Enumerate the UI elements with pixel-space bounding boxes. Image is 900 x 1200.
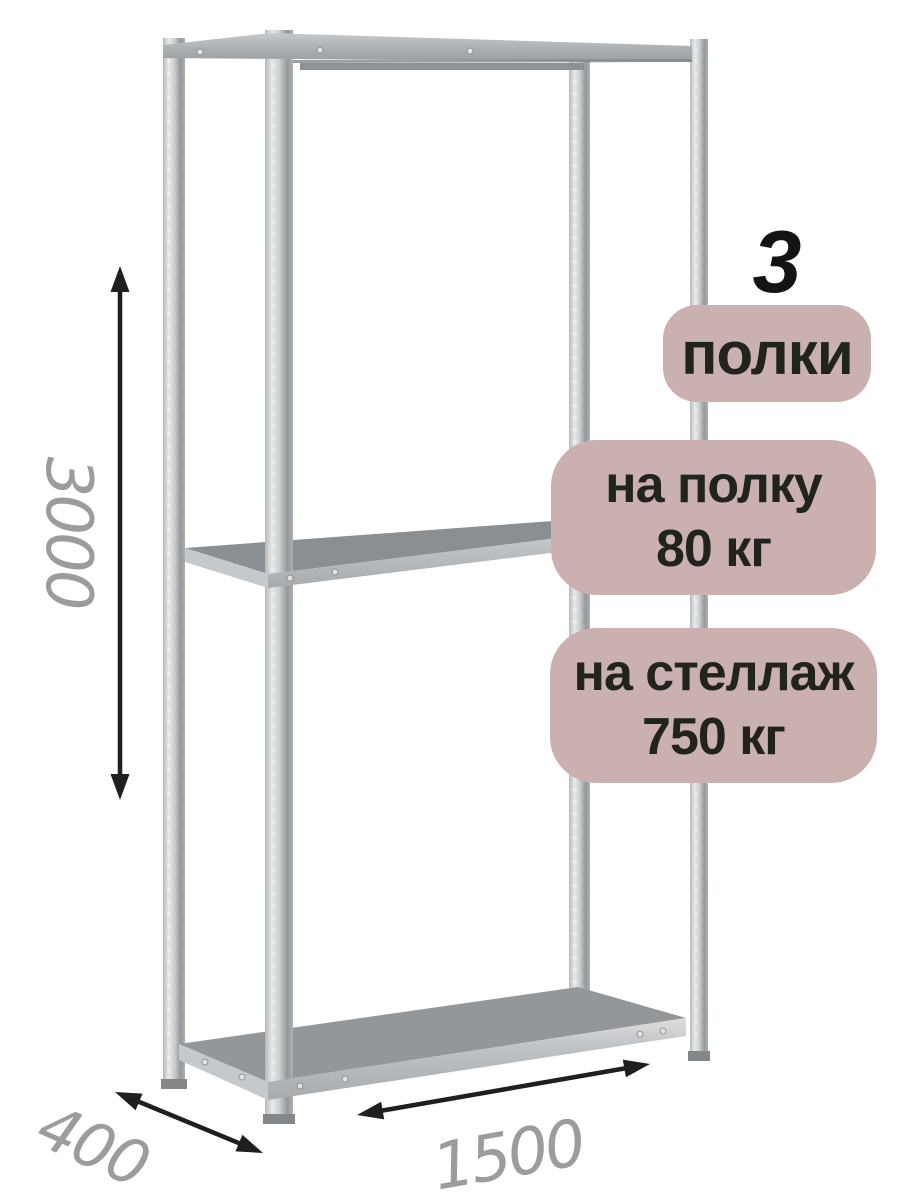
product-image-page: 3000 400 1500 3 полки на полку 80 кг на … [0, 0, 900, 1200]
per-shelf-load-line1: на полку [605, 454, 822, 517]
per-rack-load-badge: на стеллаж 750 кг [550, 628, 877, 783]
per-rack-load-line2: 750 кг [642, 706, 785, 769]
top-shelf [163, 33, 692, 70]
per-rack-load-line1: на стеллаж [574, 642, 854, 705]
shelf-top-surfaces [179, 519, 688, 1082]
shelf-count-number: 3 [729, 204, 825, 320]
height-arrow-icon [111, 266, 130, 800]
shelving-rack-illustration [0, 0, 900, 1200]
shelf-count-badge: полки [663, 305, 871, 402]
shelf-count-badge-label: полки [681, 317, 852, 390]
per-shelf-load-line2: 80 кг [656, 518, 771, 581]
height-dimension-label: 3000 [28, 446, 108, 618]
per-shelf-load-badge: на полку 80 кг [551, 440, 876, 595]
